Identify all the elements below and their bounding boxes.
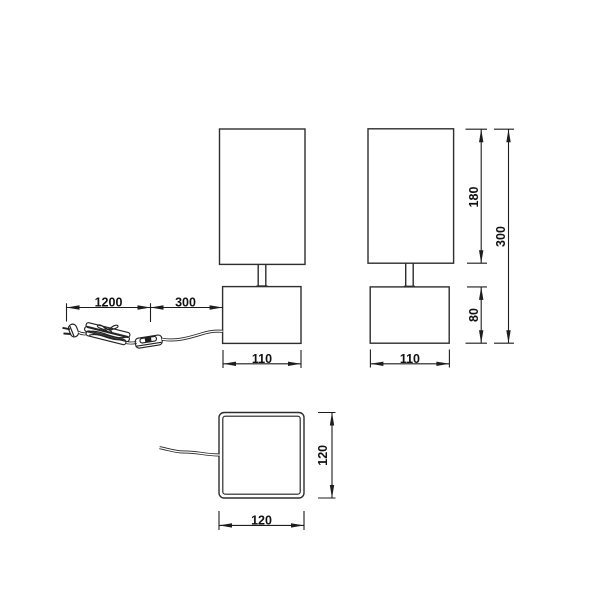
svg-text:110: 110 <box>400 352 420 366</box>
svg-text:120: 120 <box>316 445 330 466</box>
svg-text:300: 300 <box>494 226 508 247</box>
svg-text:300: 300 <box>175 295 196 309</box>
svg-text:180: 180 <box>467 187 481 208</box>
svg-text:110: 110 <box>252 352 272 366</box>
svg-text:120: 120 <box>251 513 272 527</box>
svg-text:80: 80 <box>467 308 481 322</box>
svg-text:1200: 1200 <box>95 295 123 309</box>
